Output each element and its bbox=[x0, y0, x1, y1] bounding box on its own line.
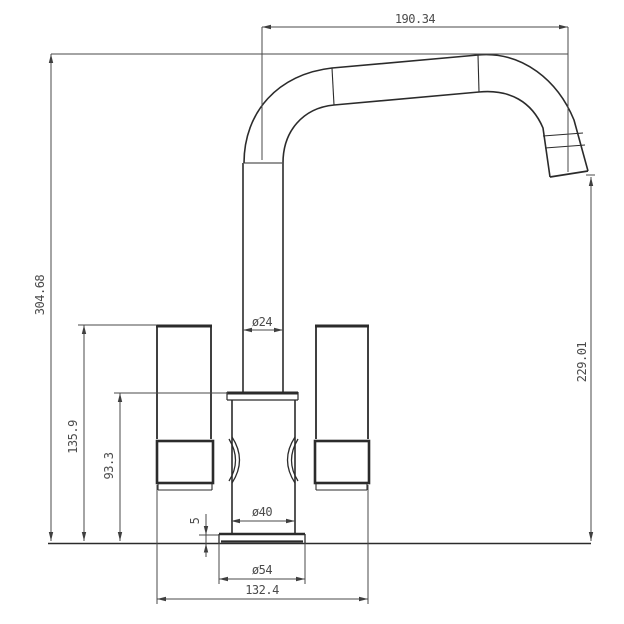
right-handle bbox=[288, 325, 370, 490]
dimension-base-diameter: ø54 bbox=[219, 543, 305, 584]
base-flange bbox=[219, 534, 305, 543]
right-handle-sides bbox=[316, 325, 368, 439]
right-handle-grip bbox=[315, 441, 369, 483]
left-handle-grip bbox=[157, 441, 213, 483]
dimension-body-top-height: 93.3 bbox=[102, 393, 228, 541]
dimension-spout-reach: 190.34 bbox=[262, 12, 568, 172]
faucet-riser bbox=[243, 163, 283, 392]
dimension-outlet-height: 229.01 bbox=[575, 175, 595, 541]
dim-base-diameter-label: ø54 bbox=[252, 563, 272, 577]
left-handle-sides bbox=[157, 325, 211, 439]
dimension-handle-top-height: 135.9 bbox=[66, 325, 157, 541]
spout-outlet-face bbox=[550, 171, 588, 177]
dim-handle-span-width-label: 132.4 bbox=[245, 583, 279, 597]
faucet-drawing: 190.34 304.68 229.01 135.9 93.3 ø24 ø40 bbox=[0, 0, 624, 624]
dim-spout-reach-label: 190.34 bbox=[395, 12, 436, 26]
left-handle-skirt bbox=[158, 484, 212, 490]
aerator-joint-line-1 bbox=[543, 133, 583, 136]
dim-spout-tube-diameter-label: ø24 bbox=[252, 315, 272, 329]
technical-drawing-canvas: 190.34 304.68 229.01 135.9 93.3 ø24 ø40 bbox=[0, 0, 624, 624]
right-handle-neck-arcs bbox=[288, 437, 299, 483]
dimension-handle-span-width: 132.4 bbox=[157, 485, 368, 604]
dimension-overall-height: 304.68 bbox=[33, 54, 53, 541]
aerator-joint-line-2 bbox=[545, 145, 585, 148]
faucet-spout bbox=[244, 55, 588, 177]
faucet-outline bbox=[48, 55, 591, 544]
dim-base-lip-height-label: 5 bbox=[188, 517, 202, 524]
spout-outer-profile bbox=[244, 55, 588, 171]
body-collar bbox=[227, 392, 298, 400]
dim-overall-height-label: 304.68 bbox=[33, 275, 47, 316]
dim-lines bbox=[262, 27, 568, 172]
right-handle-skirt bbox=[316, 484, 367, 490]
dim-lines bbox=[199, 514, 219, 557]
dim-handle-top-height-label: 135.9 bbox=[66, 420, 80, 454]
dim-body-top-height-label: 93.3 bbox=[102, 452, 116, 479]
spout-sleeve-joint-right bbox=[478, 55, 479, 92]
spout-inner-profile bbox=[283, 92, 550, 177]
dimension-base-lip-height: 5 bbox=[188, 514, 219, 557]
dim-body-diameter-label: ø40 bbox=[252, 505, 272, 519]
dim-outlet-height-label: 229.01 bbox=[575, 342, 589, 383]
left-handle-neck-arcs bbox=[229, 437, 240, 483]
dim-lines bbox=[78, 325, 157, 541]
left-handle bbox=[156, 325, 240, 490]
dimension-spout-tube-diameter: ø24 bbox=[243, 315, 283, 332]
dimension-body-diameter: ø40 bbox=[231, 505, 295, 523]
spout-sleeve-joint-left bbox=[332, 68, 334, 105]
